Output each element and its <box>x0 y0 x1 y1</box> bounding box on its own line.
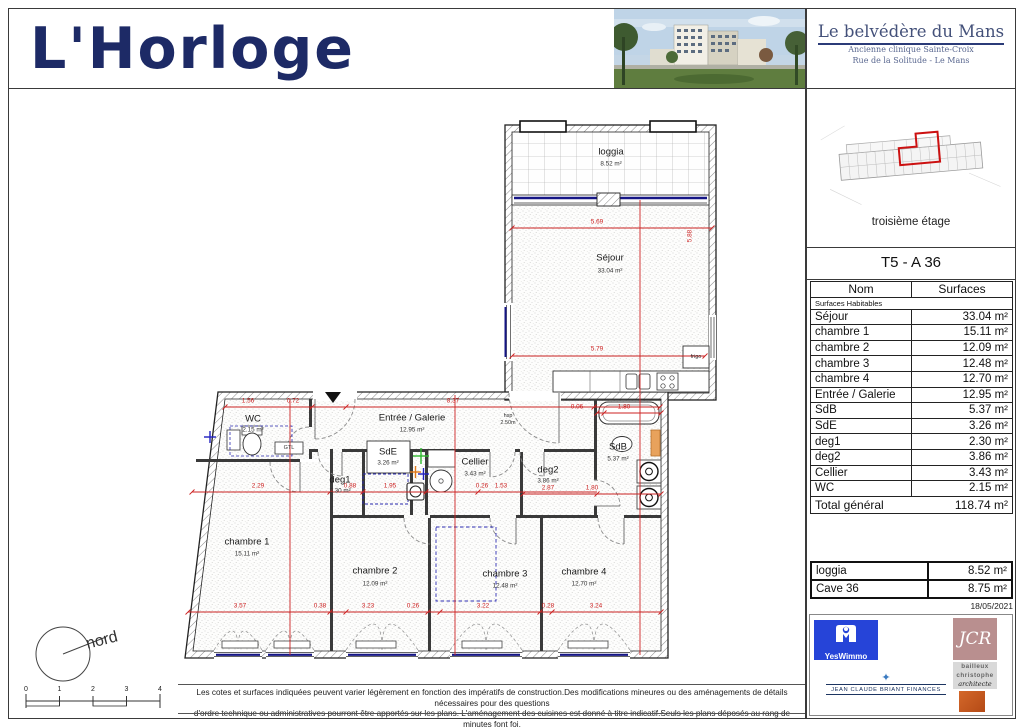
plan-sheet: loggia8.52 m² Séjour33.04 m² WC2.15 m² E… <box>0 0 1024 727</box>
page-border <box>8 8 1016 719</box>
sidebar-divider <box>805 8 807 719</box>
header-divider <box>8 88 1016 89</box>
